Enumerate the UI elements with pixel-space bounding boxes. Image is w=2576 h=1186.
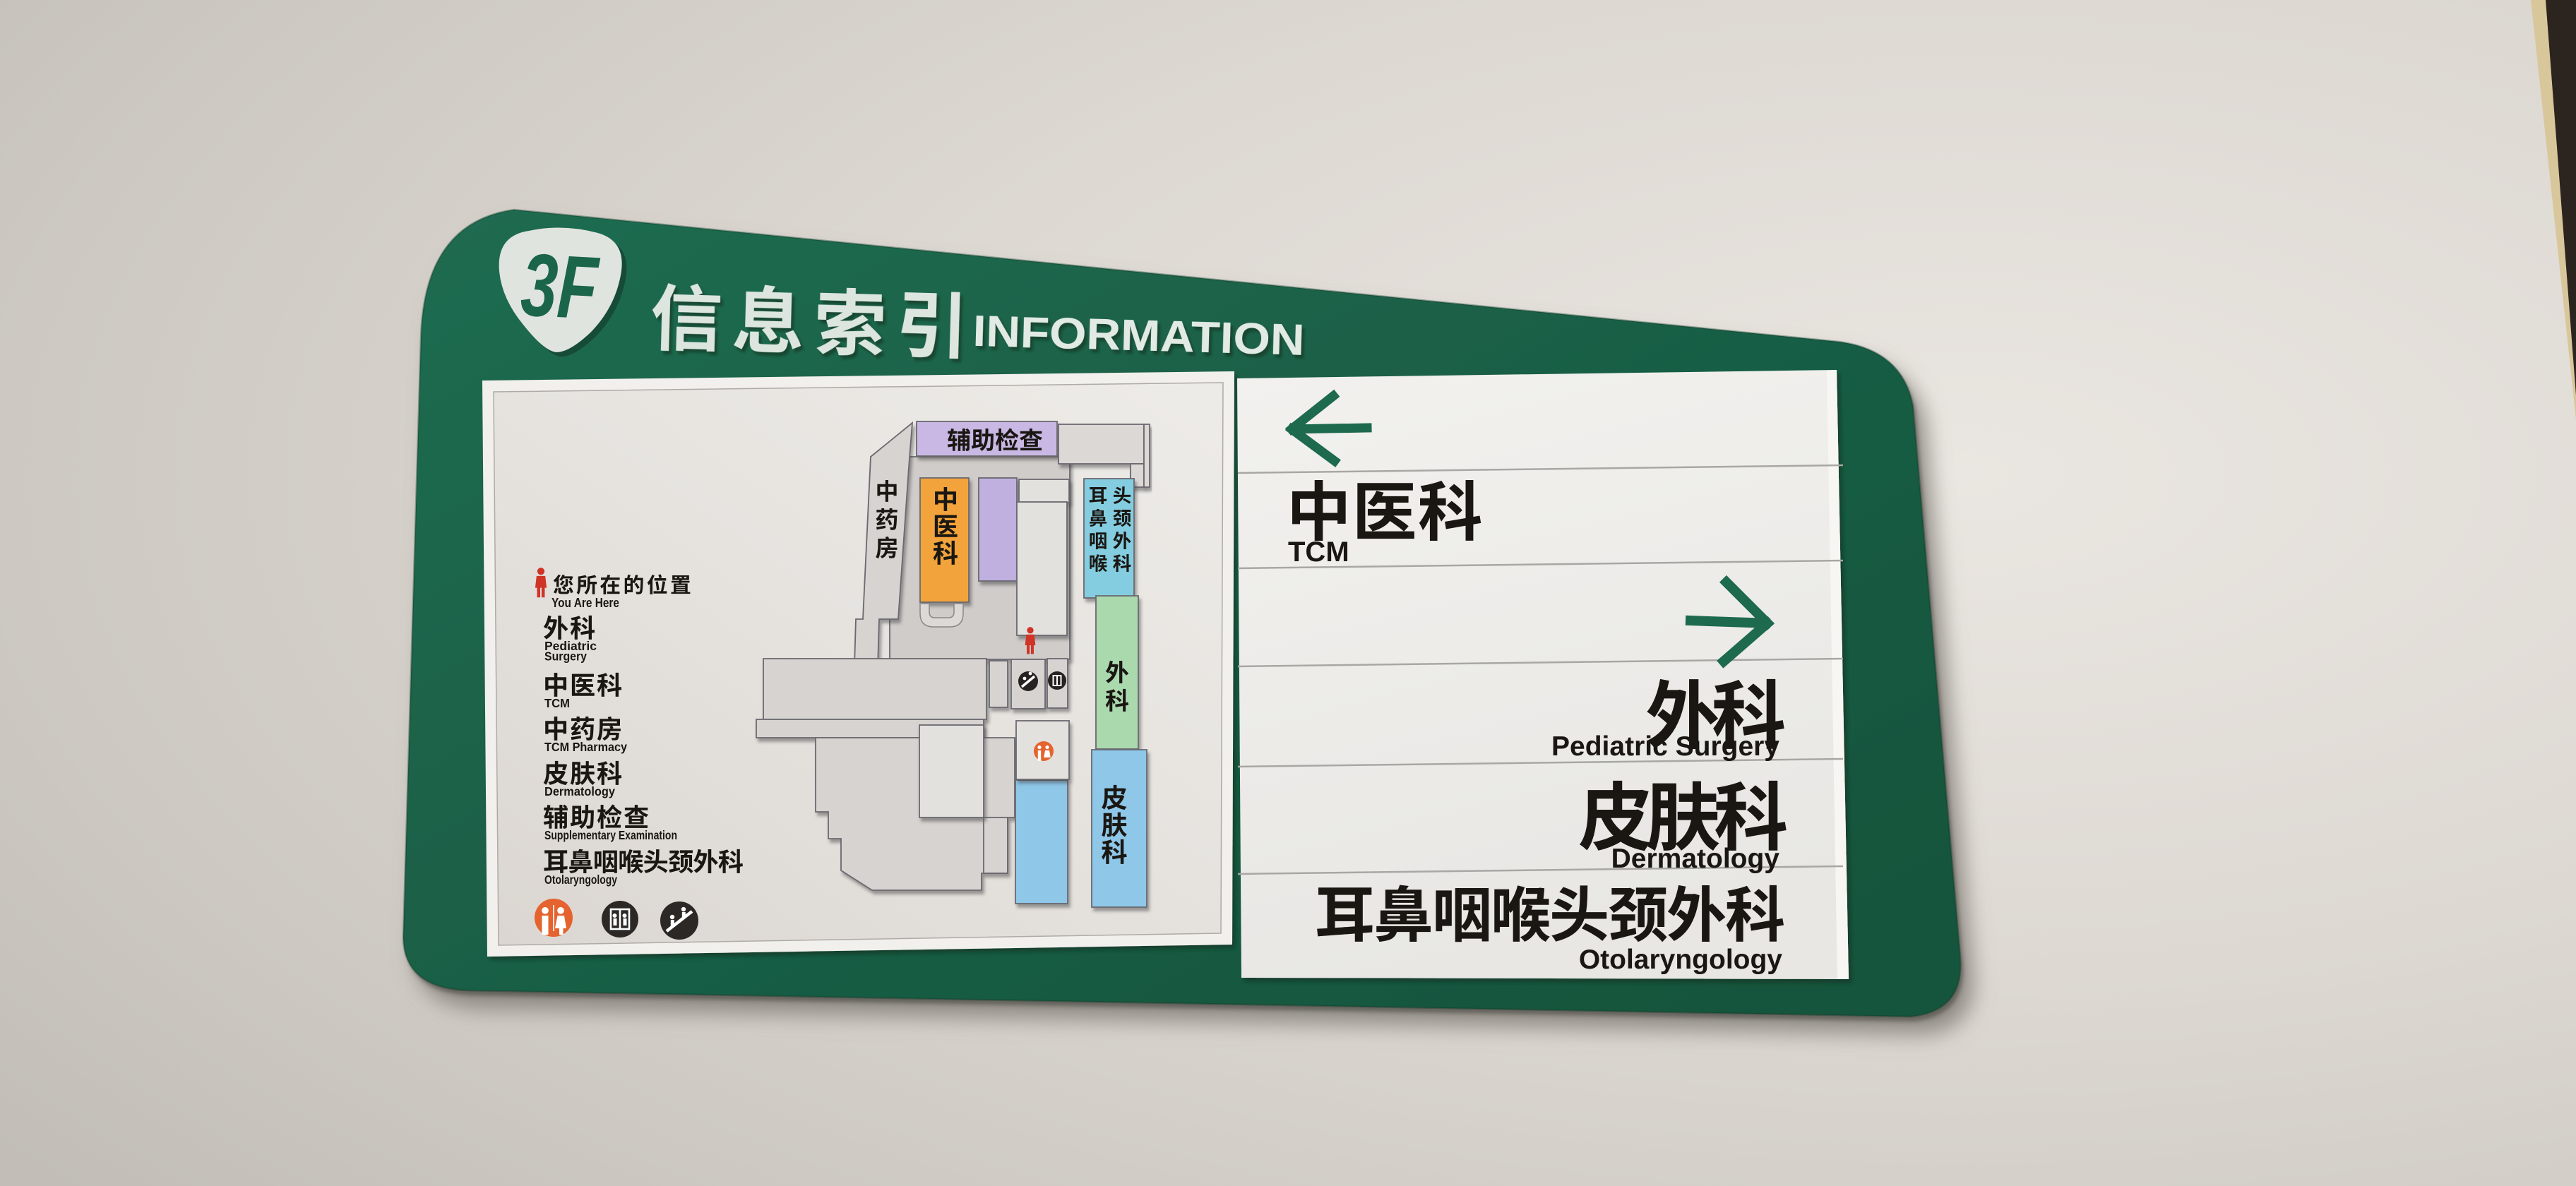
svg-text:Otolaryngology: Otolaryngology bbox=[544, 873, 617, 887]
svg-text:3F: 3F bbox=[519, 234, 602, 338]
svg-text:Dermatology: Dermatology bbox=[544, 784, 615, 798]
svg-text:TCM: TCM bbox=[1288, 537, 1349, 568]
svg-text:TCM: TCM bbox=[544, 696, 570, 710]
svg-text:Pediatric Surgery: Pediatric Surgery bbox=[1551, 731, 1779, 762]
svg-text:Dermatology: Dermatology bbox=[1611, 844, 1780, 874]
svg-text:Supplementary Examination: Supplementary Examination bbox=[544, 828, 677, 842]
svg-text:You Are Here: You Are Here bbox=[551, 596, 619, 610]
svg-text:Otolaryngology: Otolaryngology bbox=[1579, 945, 1782, 975]
svg-text:Surgery: Surgery bbox=[544, 649, 587, 664]
svg-text:INFORMATION: INFORMATION bbox=[972, 307, 1306, 365]
svg-text:TCM Pharmacy: TCM Pharmacy bbox=[544, 740, 627, 754]
